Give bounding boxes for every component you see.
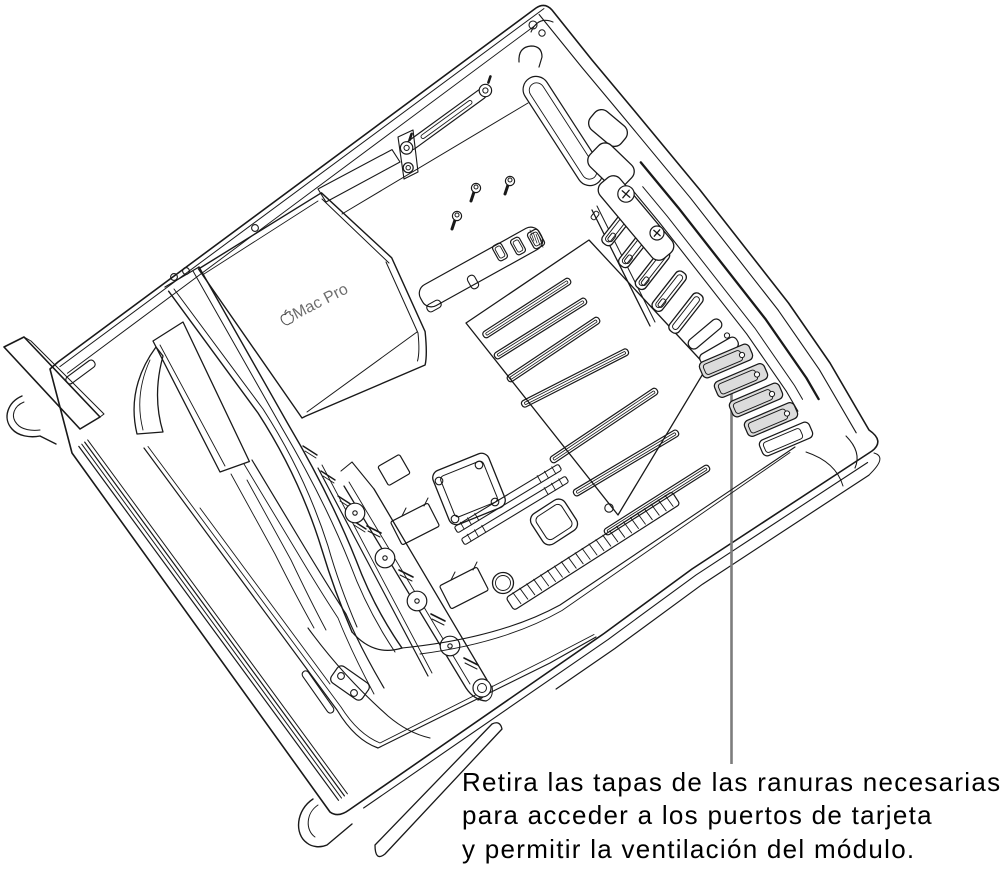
svg-text:Mac Pro: Mac Pro xyxy=(290,281,351,323)
